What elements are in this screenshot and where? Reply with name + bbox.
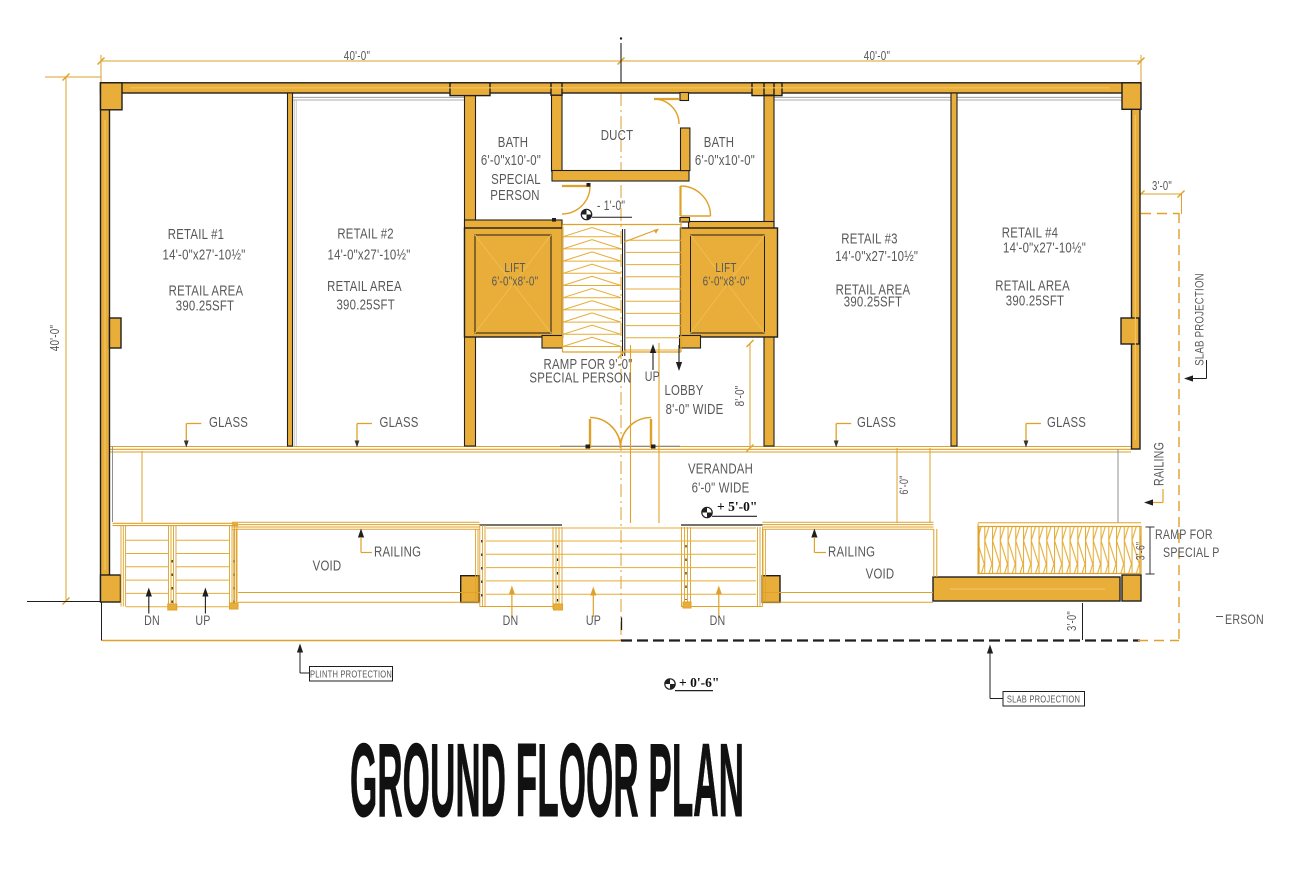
svg-text:RAILING: RAILING	[374, 543, 421, 560]
svg-text:GROUND FLOOR PLAN: GROUND FLOOR PLAN	[350, 723, 744, 839]
svg-text:UP: UP	[195, 613, 210, 629]
svg-text:GLASS: GLASS	[380, 413, 419, 430]
svg-text:LIFT: LIFT	[504, 262, 525, 276]
svg-text:SLAB PROJECTION: SLAB PROJECTION	[1194, 273, 1207, 366]
svg-text:UP: UP	[586, 613, 601, 629]
svg-text:RAILING: RAILING	[1151, 442, 1167, 486]
svg-text:390.25SFT: 390.25SFT	[844, 293, 902, 310]
svg-text:3'-0": 3'-0"	[1152, 180, 1172, 194]
svg-text:8'-0" WIDE: 8'-0" WIDE	[666, 400, 724, 417]
svg-text:6'-0"x10'-0": 6'-0"x10'-0"	[695, 151, 755, 168]
svg-text:GLASS: GLASS	[1047, 413, 1086, 430]
svg-text:14'-0"x27'-10½": 14'-0"x27'-10½"	[328, 246, 411, 263]
svg-text:RETAIL #2: RETAIL #2	[337, 225, 394, 242]
svg-text:6'-0"x10'-0": 6'-0"x10'-0"	[481, 151, 541, 168]
svg-text:DN: DN	[503, 613, 519, 629]
svg-text:8'-0": 8'-0"	[734, 386, 748, 407]
svg-text:VERANDAH: VERANDAH	[688, 460, 753, 477]
svg-text:14'-0"x27'-10½": 14'-0"x27'-10½"	[1003, 239, 1086, 256]
svg-text:390.25SFT: 390.25SFT	[1006, 292, 1064, 309]
svg-text:3'-6": 3'-6"	[1135, 542, 1147, 561]
svg-text:DUCT: DUCT	[601, 126, 634, 143]
svg-text:SLAB PROJECTION: SLAB PROJECTION	[1007, 693, 1080, 704]
svg-text:3'-0": 3'-0"	[1066, 611, 1080, 631]
svg-text:6'-0": 6'-0"	[898, 475, 912, 494]
svg-text:ERSON: ERSON	[1225, 612, 1264, 628]
svg-text:14'-0"x27'-10½": 14'-0"x27'-10½"	[835, 247, 918, 264]
svg-text:6'-0"x8'-0": 6'-0"x8'-0"	[492, 275, 539, 289]
svg-text:LOBBY: LOBBY	[664, 381, 703, 398]
svg-text:BATH: BATH	[498, 133, 528, 150]
svg-text:VOID: VOID	[313, 557, 342, 574]
svg-text:40'-0": 40'-0"	[864, 50, 891, 64]
svg-text:RAMP FOR: RAMP FOR	[1155, 527, 1213, 543]
svg-text:UP: UP	[645, 369, 660, 385]
svg-text:RAILING: RAILING	[828, 543, 875, 560]
svg-text:PLINTH PROTECTION: PLINTH PROTECTION	[310, 668, 392, 679]
svg-text:RETAIL AREA: RETAIL AREA	[327, 277, 402, 294]
svg-text:SPECIAL P: SPECIAL P	[1163, 545, 1220, 561]
svg-text:+ 0'-6": + 0'-6"	[679, 675, 719, 690]
svg-text:GLASS: GLASS	[857, 413, 896, 430]
svg-text:+ 5'-0": + 5'-0"	[717, 499, 757, 514]
svg-text:390.25SFT: 390.25SFT	[176, 297, 234, 314]
svg-text:DN: DN	[710, 613, 726, 629]
svg-text:SPECIAL PERSON: SPECIAL PERSON	[529, 369, 631, 386]
svg-text:LIFT: LIFT	[715, 262, 736, 276]
svg-text:RETAIL #3: RETAIL #3	[841, 230, 898, 247]
svg-text:VOID: VOID	[866, 565, 895, 582]
svg-text:DN: DN	[144, 613, 160, 629]
svg-text:RETAIL #1: RETAIL #1	[168, 225, 225, 242]
svg-text:14'-0"x27'-10½": 14'-0"x27'-10½"	[163, 246, 246, 263]
svg-text:6'-0" WIDE: 6'-0" WIDE	[692, 479, 750, 496]
svg-text:BATH: BATH	[704, 133, 734, 150]
svg-text:SPECIAL: SPECIAL	[491, 170, 541, 187]
svg-text:40'-0": 40'-0"	[344, 50, 371, 64]
svg-text:40'-0": 40'-0"	[49, 325, 63, 352]
svg-text:- 1'-0": - 1'-0"	[597, 198, 625, 214]
svg-text:PERSON: PERSON	[490, 186, 539, 203]
svg-text:GLASS: GLASS	[209, 413, 248, 430]
svg-text:6'-0"x8'-0": 6'-0"x8'-0"	[703, 275, 750, 289]
svg-text:390.25SFT: 390.25SFT	[336, 296, 394, 313]
